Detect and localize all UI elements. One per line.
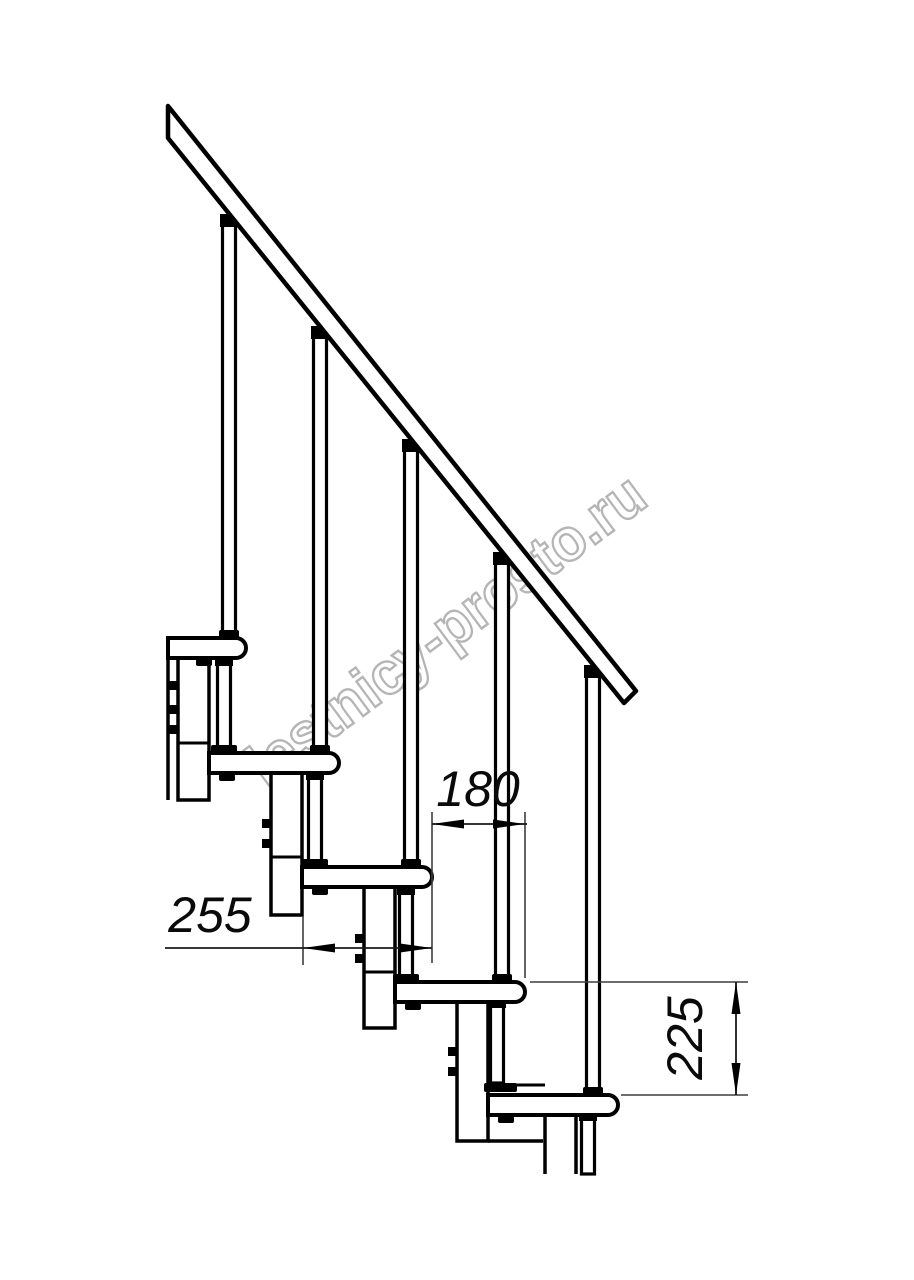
- step-tread-4: [395, 982, 525, 1002]
- step-clamp: [219, 630, 239, 638]
- step-clamp: [583, 1087, 603, 1095]
- arrowhead-up: [732, 982, 741, 1014]
- drawing-canvas: lestnicy-prosto.ru: [0, 0, 914, 1280]
- bolt: [196, 659, 212, 666]
- step-tread-1: [168, 638, 246, 658]
- bolt-tab: [169, 725, 178, 734]
- baluster-5: [583, 665, 603, 1095]
- bolt-tab: [262, 839, 271, 848]
- bolt-tab: [448, 1067, 457, 1076]
- baluster-1: [219, 214, 239, 638]
- handrail: [168, 106, 636, 703]
- rod-3: [393, 888, 419, 982]
- support-module-3: [355, 887, 395, 1028]
- step-tread-5: [488, 1095, 618, 1115]
- bolt-tab: [355, 954, 364, 963]
- bolt-tab: [355, 934, 364, 943]
- dimension-rise-label: 225: [657, 996, 713, 1081]
- step-tread-2: [209, 753, 339, 773]
- staircase-drawing: lestnicy-prosto.ru: [0, 0, 914, 1280]
- bolt-tab: [262, 819, 271, 828]
- step-tread-3: [302, 867, 432, 887]
- arrowhead-left: [432, 820, 464, 829]
- rod-2: [302, 773, 328, 867]
- support-module-2: [262, 772, 302, 915]
- support-module-5: [545, 1113, 576, 1174]
- step-clamp: [492, 974, 512, 982]
- arrowhead-down: [732, 1063, 741, 1095]
- dimension-run-label: 180: [436, 761, 520, 817]
- bolt: [219, 774, 235, 781]
- rod-5: [579, 1114, 597, 1174]
- arrowhead-right: [400, 944, 432, 953]
- rod-1: [211, 659, 237, 753]
- dimension-run: 180: [432, 761, 527, 829]
- step-clamp: [310, 745, 330, 753]
- bolt-tab: [448, 1047, 457, 1056]
- baluster-2: [310, 326, 330, 753]
- step-clamp: [401, 859, 421, 867]
- bolt-tab: [169, 705, 178, 714]
- bolt: [405, 1003, 421, 1010]
- baluster-3: [401, 439, 421, 867]
- arrowhead-left: [303, 944, 335, 953]
- rod-4: [484, 1001, 517, 1092]
- bolt: [312, 888, 328, 895]
- bolt: [498, 1116, 514, 1123]
- support-module-1: [169, 658, 209, 800]
- dimension-tread-depth-label: 255: [167, 887, 252, 943]
- dimension-rise: 225: [657, 982, 741, 1095]
